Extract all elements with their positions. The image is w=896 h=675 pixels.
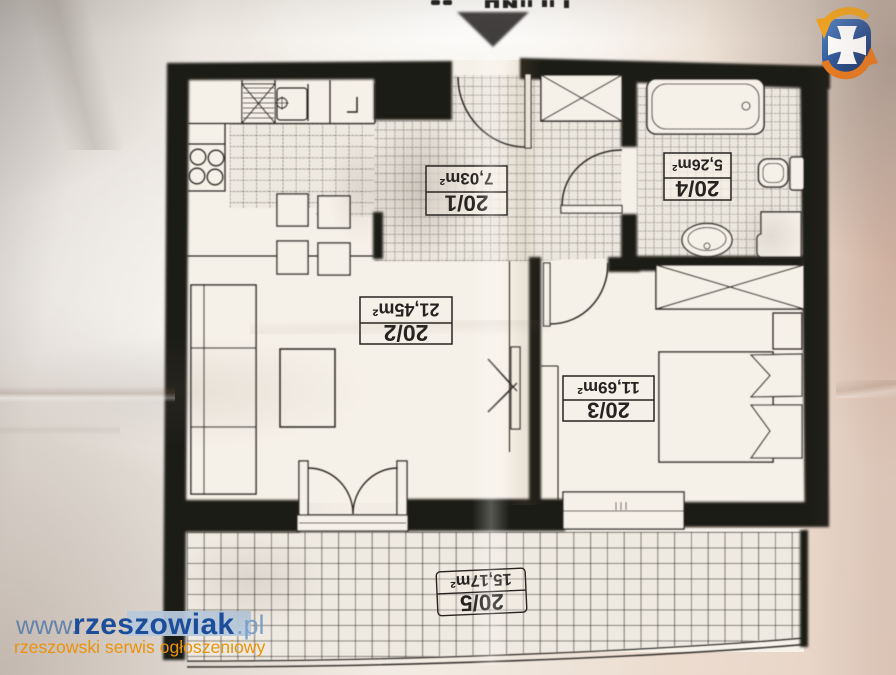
svg-text:www.: www. [15, 610, 78, 640]
svg-text:11,69m²: 11,69m² [577, 378, 640, 397]
svg-text:20/1: 20/1 [445, 190, 489, 215]
svg-text:20/2: 20/2 [384, 320, 429, 346]
svg-text:20/4: 20/4 [675, 176, 719, 201]
svg-text:.pl: .pl [236, 610, 265, 640]
svg-text:rzeszowski serwis ogłoszeniowy: rzeszowski serwis ogłoszeniowy [14, 637, 265, 657]
svg-text:21,45m²: 21,45m² [372, 300, 439, 320]
svg-text:15,17m²: 15,17m² [449, 570, 512, 591]
svg-text:20/5: 20/5 [460, 589, 505, 616]
svg-text:20/3: 20/3 [587, 398, 630, 423]
svg-text:5,26m²: 5,26m² [672, 156, 723, 173]
svg-text:7,03m²: 7,03m² [439, 169, 493, 188]
